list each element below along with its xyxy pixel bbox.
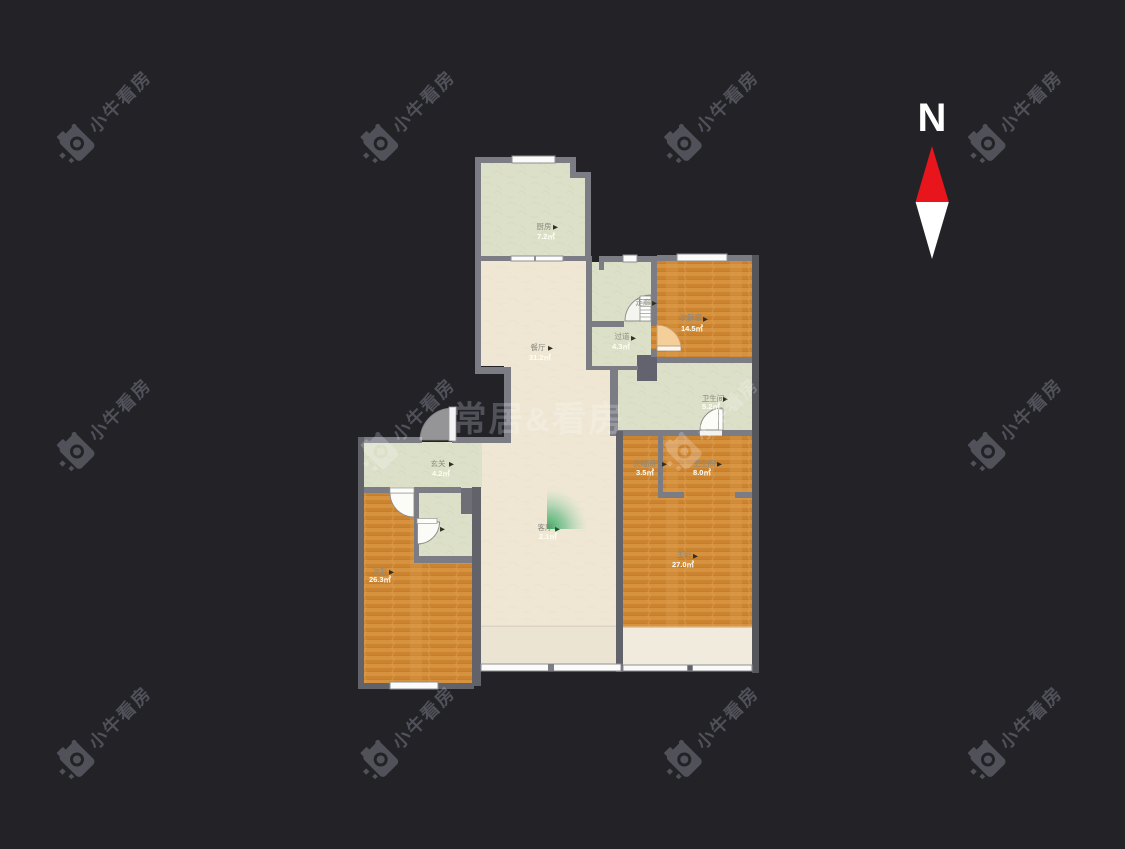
svg-text:走廊: 走廊 [636,297,651,307]
svg-text:2.1㎡: 2.1㎡ [539,531,557,541]
svg-text:玄关: 玄关 [431,458,446,468]
svg-text:4.3㎡: 4.3㎡ [612,341,630,351]
svg-text:14.5㎡: 14.5㎡ [681,323,704,333]
svg-text:餐厅: 餐厅 [531,343,546,352]
svg-text:衣帽间: 衣帽间 [633,458,656,468]
svg-text:31.2㎡: 31.2㎡ [529,352,552,362]
svg-text:次卧室: 次卧室 [680,312,703,322]
svg-text:常居&看房: 常居&看房 [452,401,625,439]
svg-text:8.0㎡: 8.0㎡ [693,467,711,477]
svg-text:4.2㎡: 4.2㎡ [432,468,450,478]
svg-text:厨房: 厨房 [537,221,552,231]
svg-text:主卧: 主卧 [677,549,692,559]
svg-text:3.5㎡: 3.5㎡ [636,467,654,477]
svg-text:27.0㎡: 27.0㎡ [672,559,695,569]
svg-text:客厅: 客厅 [538,522,553,532]
svg-text:7.2㎡: 7.2㎡ [537,231,555,241]
svg-text:26.3㎡: 26.3㎡ [369,574,392,584]
svg-text:过道: 过道 [615,331,630,341]
svg-text:N: N [918,96,947,140]
